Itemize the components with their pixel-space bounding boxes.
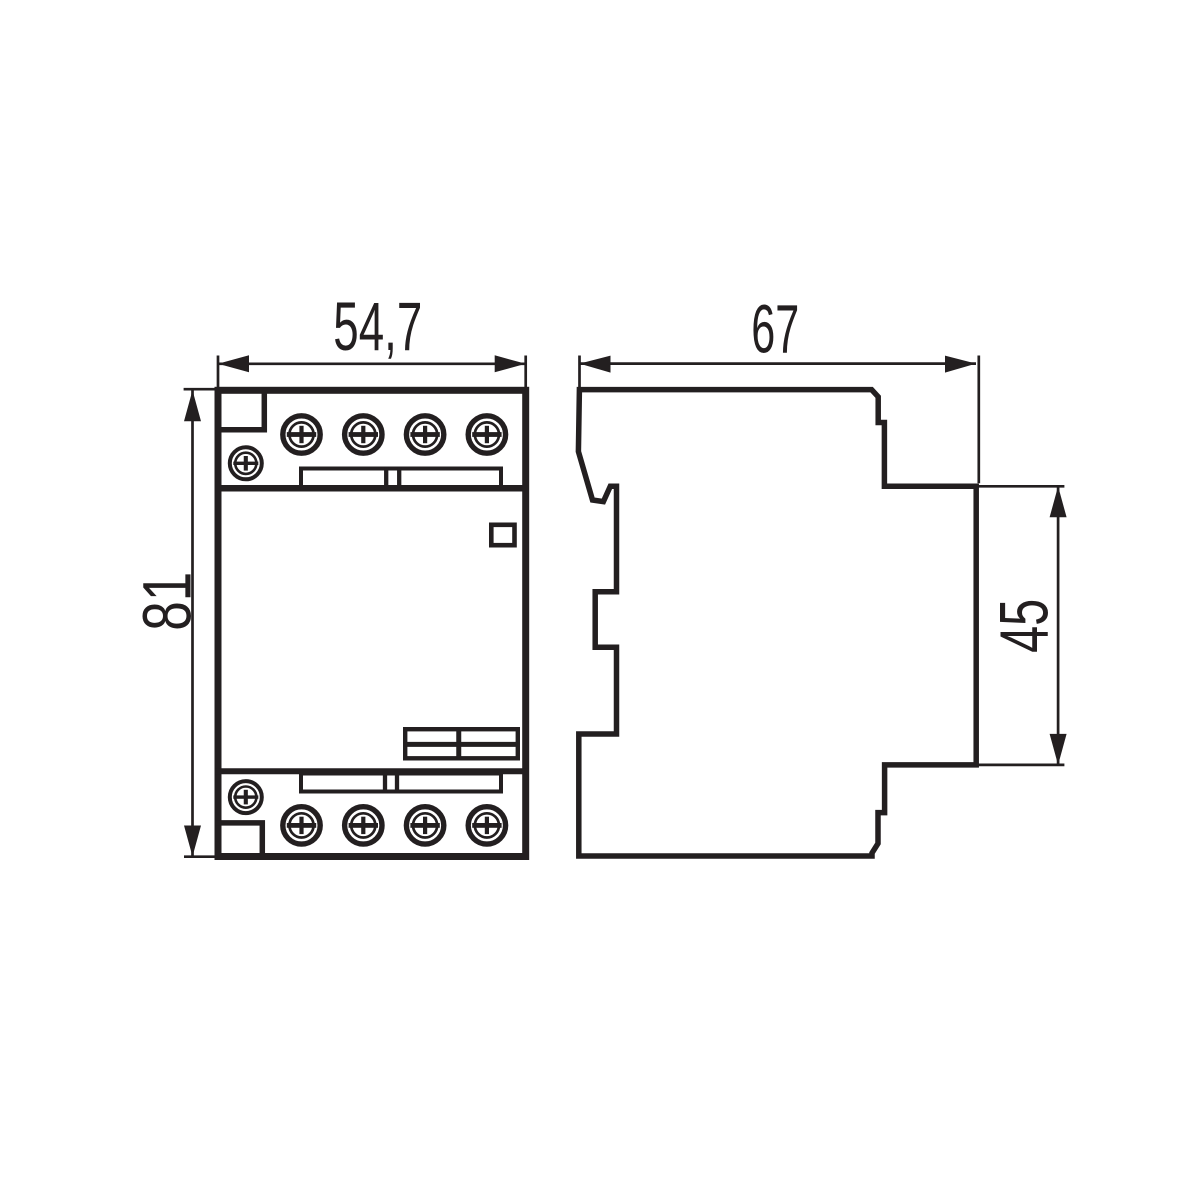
svg-text:67: 67	[751, 290, 799, 367]
svg-text:45: 45	[986, 599, 1063, 653]
svg-text:81: 81	[129, 572, 206, 631]
svg-text:54,7: 54,7	[333, 288, 422, 365]
